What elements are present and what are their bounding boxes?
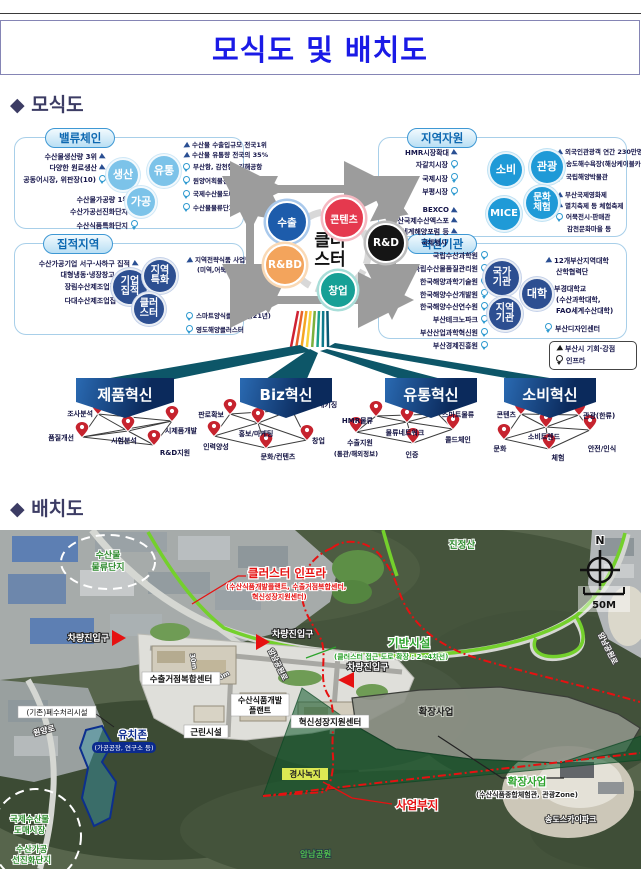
list-item: 원양어획물전용부두 <box>183 176 253 187</box>
pin-icon <box>451 160 458 167</box>
node-label: 인력양성 <box>203 442 229 451</box>
item-label: 어묵전시·판매관 <box>566 214 610 222</box>
item-label: 원양어획물전용부두 <box>193 178 247 186</box>
node-label: 물류네트워크 <box>386 428 425 437</box>
list-item: 스마트양식클러스터(21년) <box>186 312 256 323</box>
banner-product-innovation: 제품혁신 <box>76 378 174 418</box>
item-label: 국제시장 <box>422 175 448 183</box>
list-item: 한국해양수산연수원 <box>380 302 488 313</box>
site-label: 사업부지 <box>396 798 438 812</box>
item-label: 자갈치시장 <box>416 161 448 169</box>
slope-green-label: 경사녹지 <box>289 769 320 780</box>
item-label: (수산과학대학, <box>556 296 601 304</box>
wholesale-zone-label: 도매시장 <box>14 825 45 836</box>
pin-icon <box>131 220 138 227</box>
item-label: 국제행사 <box>421 239 447 247</box>
wholesale-zone-label: 수산가공 <box>16 844 47 855</box>
pin-icon <box>556 213 563 220</box>
list-item: 12개부산지역대학 <box>545 257 631 265</box>
list-item: 부평시장 <box>380 187 458 198</box>
item-label: 부산산업과학혁신원 <box>420 329 478 337</box>
arrow-icon <box>132 260 140 268</box>
item-label: 수산물물류단지 <box>193 205 235 213</box>
satellite-export: 수출 <box>266 201 308 243</box>
circle-culture: 문화 체험 <box>524 185 560 221</box>
item-label: 수산물 수출입규모 전국1위 <box>192 142 267 150</box>
list-item: 국제시장 <box>380 173 458 184</box>
item-label: FAO세계수산대학) <box>556 307 613 315</box>
fan-connectors <box>93 343 568 381</box>
section-heading-layout: ◆ 배치도 <box>10 494 84 521</box>
node-label: 시제품개발 <box>165 426 198 435</box>
logistics-zone-label: 수산물 <box>96 549 121 561</box>
arrow-icon <box>451 207 459 215</box>
circle-university: 대학 <box>520 277 554 311</box>
satellite-rbd: R&BD <box>264 244 306 286</box>
wholesale-zone-label: 선진화단지 <box>12 855 51 866</box>
item-label: 외국인관광객 연간 230만명 <box>565 149 641 157</box>
pin-icon <box>183 190 190 197</box>
logistics-zone-label: 물류단지 <box>91 561 124 573</box>
pin-icon <box>481 341 488 348</box>
list-item: 부산디자인센터 <box>545 323 631 334</box>
node-label: 판로확보 <box>198 410 224 419</box>
node-label: R&D지원 <box>160 448 190 457</box>
list-item: 수산물생산량 3위 <box>14 153 106 161</box>
list-item: 수산가공기업 서구·사하구 집적 <box>15 260 139 268</box>
arrow-icon <box>451 228 459 236</box>
node-label: 문화 <box>494 444 507 453</box>
arrow-icon <box>182 142 190 150</box>
node-label: 창업 <box>312 436 325 445</box>
neighborhood-label: 근린시설 <box>190 727 221 738</box>
attract-zone-sub: (가공공장, 연구소 등) <box>94 743 153 752</box>
arrow-icon <box>544 257 552 265</box>
food-plant-label: 수산식품개발 <box>238 695 283 705</box>
section-heading-schematic: ◆ 모식도 <box>10 90 84 117</box>
arrow-icon <box>451 217 459 225</box>
list-item: 산학협력단 <box>545 268 631 276</box>
item-label: 수산물 유통량 전국의 35% <box>192 152 268 160</box>
list-item: 외국인관광객 연간 230만명 <box>556 149 638 157</box>
node-label: 안전/인식 <box>588 444 616 453</box>
item-label: 국립수산물품질관리원 <box>414 265 478 273</box>
item-label: 부산항, 감천항, 김해공항 <box>193 164 262 172</box>
legend-item: 인프라 <box>556 355 630 366</box>
expansion-area-label: 확장사업 <box>419 706 454 718</box>
item-label: 수산물생산량 3위 <box>45 153 97 161</box>
top-rule <box>0 13 641 14</box>
node-label: 콘텐츠 <box>497 410 517 419</box>
item-label: 부산국제영화제 <box>565 192 607 200</box>
schematic-legend: 부산시 기회·강점 인프라 <box>549 341 637 370</box>
pin-icon <box>186 312 193 319</box>
circle-distribution: 유통 <box>147 154 181 188</box>
list-item: 공동어시장, 위판장(10) <box>14 175 106 186</box>
panel-regional-title: 지역자원 <box>407 128 477 148</box>
list-item: 수산물 수출입규모 전국1위 <box>183 142 253 150</box>
item-label: 수산식품특화단지 <box>76 222 128 230</box>
page-title: 모식도 및 배치도 <box>212 27 428 69</box>
regional-right-list: 외국인관광객 연간 230만명 송도해수욕장(해상케이블카) 국립해양박물관 부… <box>556 149 638 234</box>
list-item: 영도해양클러스터 <box>186 325 256 336</box>
item-label: BEXCO <box>423 206 449 214</box>
arrow-icon <box>451 149 459 157</box>
item-label: 국립수산과학원 <box>433 252 478 260</box>
item-label: 국제수산물도매시장 <box>193 191 247 199</box>
innovation-right-list: 12개부산지역대학 산학협력단 부경대학교 (수산과학대학, FAO세계수산대학… <box>545 257 631 334</box>
item-label: 감천문화마을 등 <box>567 226 611 234</box>
pin-icon <box>99 175 106 182</box>
list-item: FAO세계수산대학) <box>545 307 631 315</box>
circle-processing: 가공 <box>125 186 157 218</box>
item-label: 한국해양수산연수원 <box>420 303 478 311</box>
item-label: 수산가공선진화단지 <box>70 208 128 216</box>
cluster-infra-sub: (수산식품개발플랜트, 수출거점복합센터, <box>226 582 346 591</box>
expansion-sub: (수산식품종합체험관, 관광Zone) <box>476 790 578 799</box>
item-label: 부산테크노파크 <box>433 316 478 324</box>
wholesale-zone-label: 국제수산물 <box>10 814 49 825</box>
banner-consumption-innovation: 소비혁신 <box>504 378 596 418</box>
item-label: 지역전략식품 사업단 <box>195 257 251 265</box>
node-label: 인증 <box>406 450 419 459</box>
list-item: (미역,어묵,고등어) <box>186 267 256 275</box>
cluster-area-right-list: 지역전략식품 사업단 (미역,어묵,고등어) 스마트양식클러스터(21년) 영도… <box>186 257 256 336</box>
node-label: 수출지원 <box>347 438 373 447</box>
arrow-icon <box>99 153 107 161</box>
arrow-icon <box>182 152 190 160</box>
site-layout-map: N 50M 진정산 수산물 물류단지 클러스터 인프라 (수산식품개발플랜트, … <box>0 530 641 869</box>
cluster-infra-sub: 혁신성장지원센터) <box>252 592 307 601</box>
list-item: 수산물가공량 1위 <box>36 196 138 204</box>
item-label: 부산국제수산엑스포 <box>391 217 449 225</box>
arrow-icon <box>555 345 563 353</box>
item-label: 부산경제진흥원 <box>433 342 478 350</box>
item-label: HMR시장확대 <box>405 149 449 157</box>
satellite-contents: 콘텐츠 <box>323 197 365 239</box>
node-label: 문화/컨텐츠 <box>261 452 296 461</box>
attract-zone-title: 유치존 <box>118 728 147 741</box>
list-item: 부산테크노파크 <box>380 315 488 326</box>
base-infra-title: 기반시설 <box>388 636 430 650</box>
circle-cluster: 클러 스터 <box>132 292 166 326</box>
panel-value-chain-title: 밸류체인 <box>45 128 115 148</box>
item-label: 한국해양수산개발원 <box>420 291 478 299</box>
circle-national: 국가 기관 <box>483 259 521 297</box>
mountain-label: 진정산 <box>449 539 475 551</box>
list-item: BEXCO <box>380 206 458 214</box>
node-label: HMR물류 <box>342 416 374 425</box>
base-infra-sub: (클러스터 접근 도로 확장 : 2→4차선) <box>334 652 448 661</box>
pin-icon <box>183 203 190 210</box>
pin-icon <box>481 328 488 335</box>
legend-label: 부산시 기회·강점 <box>565 345 615 353</box>
scale-label: 50M <box>592 600 616 611</box>
wastewater-label: (기존)폐수처리시설 <box>26 707 87 717</box>
item-label: 수산가공기업 서구·사하구 집적 <box>39 260 130 268</box>
list-item: 수산물 유통량 전국의 35% <box>183 152 253 160</box>
panel-cluster-area-title: 집적지역 <box>43 234 113 254</box>
list-item: HMR시장확대 <box>380 149 458 157</box>
banner-distribution-innovation: 유통혁신 <box>385 378 477 418</box>
pin-icon <box>451 173 458 180</box>
entrance-label: 차량진입구 <box>272 628 313 640</box>
item-label: 산학협력단 <box>556 268 588 276</box>
page-title-box: 모식도 및 배치도 <box>0 20 640 75</box>
item-label: 한국해양과학기술원 <box>420 278 478 286</box>
list-item: 수산식품특화단지 <box>36 220 138 231</box>
node-sublabel: (통관/해외정보) <box>334 449 378 458</box>
node-label: 소비트렌드 <box>528 432 561 441</box>
banner-biz-innovation: Biz혁신 <box>240 378 332 418</box>
list-item: 어묵전시·판매관 <box>556 213 638 224</box>
value-chain-bottom-list: 수산물가공량 1위 수산가공선진화단지 수산식품특화단지 <box>36 196 138 231</box>
item-label: 국립해양박물관 <box>566 174 608 182</box>
entrance-label: 차량진입구 <box>347 661 388 673</box>
pin-icon <box>451 187 458 194</box>
node-label: 시험분석 <box>111 436 137 445</box>
list-item: 자갈치시장 <box>380 160 458 171</box>
food-plant-label: 플랜트 <box>249 705 272 715</box>
list-item: 부산경제진흥원 <box>380 341 488 352</box>
item-label: 부산디자인센터 <box>555 325 600 333</box>
node-label: 홍보/마케팅 <box>239 429 274 438</box>
circle-special: 지역 특화 <box>142 258 178 294</box>
list-item: 한국해양과학기술원 <box>380 277 488 288</box>
list-item: 수산물물류단지 <box>183 203 253 214</box>
arrow-icon <box>185 257 193 265</box>
innov-center-label: 혁신성장지원센터 <box>299 717 362 728</box>
item-label: 송도해수욕장(해상케이블카) <box>566 161 641 169</box>
item-label: 영도해양클러스터 <box>196 327 244 335</box>
list-item: 송도해수욕장(해상케이블카) <box>556 159 638 170</box>
item-label: 다양한 원료생산 <box>49 164 97 172</box>
list-item: 부산국제영화제 <box>556 192 638 200</box>
node-label: 조사분석 <box>67 409 93 418</box>
list-item: 국제수산물도매시장 <box>183 190 253 201</box>
value-chain-right-list: 수산물 수출입규모 전국1위 수산물 유통량 전국의 35% 부산항, 감천항,… <box>183 142 253 214</box>
pin-icon <box>545 323 552 330</box>
park-label: 암남공원 <box>300 849 331 860</box>
list-item: 한국해양수산개발원 <box>380 289 488 300</box>
expansion-title: 확장사업 <box>508 775 547 788</box>
innovation-left-list: 국립수산과학원 국립수산물품질관리원 한국해양과학기술원 한국해양수산개발원 한… <box>380 251 488 352</box>
circle-consumption: 소비 <box>488 152 524 188</box>
node-label: 체험 <box>552 453 565 462</box>
list-item: 멸치축제 등 체험축제 <box>556 203 638 211</box>
export-center-label: 수출거점복합센터 <box>150 674 213 685</box>
list-item: (수산과학대학, <box>545 296 631 304</box>
circle-mice: MICE <box>486 196 522 232</box>
pin-icon <box>186 325 193 332</box>
item-label: 스마트양식클러스터(21년) <box>196 313 271 321</box>
satellite-rd: R&D <box>366 223 406 263</box>
skypark-label: 송도스카이파크 <box>545 814 597 824</box>
list-item: 국립수산물품질관리원 <box>380 264 488 275</box>
node-label: 관광(한류) <box>583 411 615 420</box>
legend-item: 부산시 기회·강점 <box>556 345 630 353</box>
list-item: 부산항, 감천항, 김해공항 <box>183 163 253 174</box>
circle-regional-org: 지역 기관 <box>487 296 523 332</box>
list-item: 지역전략식품 사업단 <box>186 257 256 265</box>
circle-tourism: 관광 <box>529 149 565 185</box>
node-label: 품질개선 <box>48 433 74 442</box>
item-label: (미역,어묵,고등어) <box>197 267 250 275</box>
compass-north-label: N <box>595 534 604 547</box>
pin-icon <box>556 355 563 362</box>
item-label: 수산물가공량 1위 <box>77 196 129 204</box>
scale-bar: 50M <box>578 586 630 612</box>
item-label: 공동어시장, 위판장(10) <box>23 176 96 184</box>
item-label: 부평시장 <box>422 188 448 196</box>
list-item: 수산가공선진화단지 <box>36 207 138 218</box>
list-item: 국립해양박물관 <box>556 173 638 184</box>
pin-icon <box>183 163 190 170</box>
pin-icon <box>481 251 488 258</box>
color-strips <box>291 311 328 347</box>
item-label: 세계해양포럼 등 <box>401 228 449 236</box>
item-label: 멸치축제 등 체험축제 <box>565 203 623 211</box>
entrance-label: 차량진입구 <box>68 632 109 644</box>
list-item: 다양한 원료생산 <box>14 164 106 172</box>
value-chain-left-list: 수산물생산량 3위 다양한 원료생산 공동어시장, 위판장(10) <box>14 153 106 186</box>
satellite-startup: 창업 <box>319 271 357 309</box>
node-label: 콜드체인 <box>445 435 471 444</box>
list-item: 감천문화마을 등 <box>556 226 638 234</box>
pin-icon <box>183 176 190 183</box>
cluster-infra-title: 클러스터 인프라 <box>248 566 326 580</box>
legend-label: 인프라 <box>566 357 585 365</box>
list-item: 부산산업과학혁신원 <box>380 328 488 339</box>
item-label: 부경대학교 <box>554 285 586 293</box>
list-item: 부경대학교 <box>545 285 631 293</box>
item-label: 12개부산지역대학 <box>554 257 609 265</box>
